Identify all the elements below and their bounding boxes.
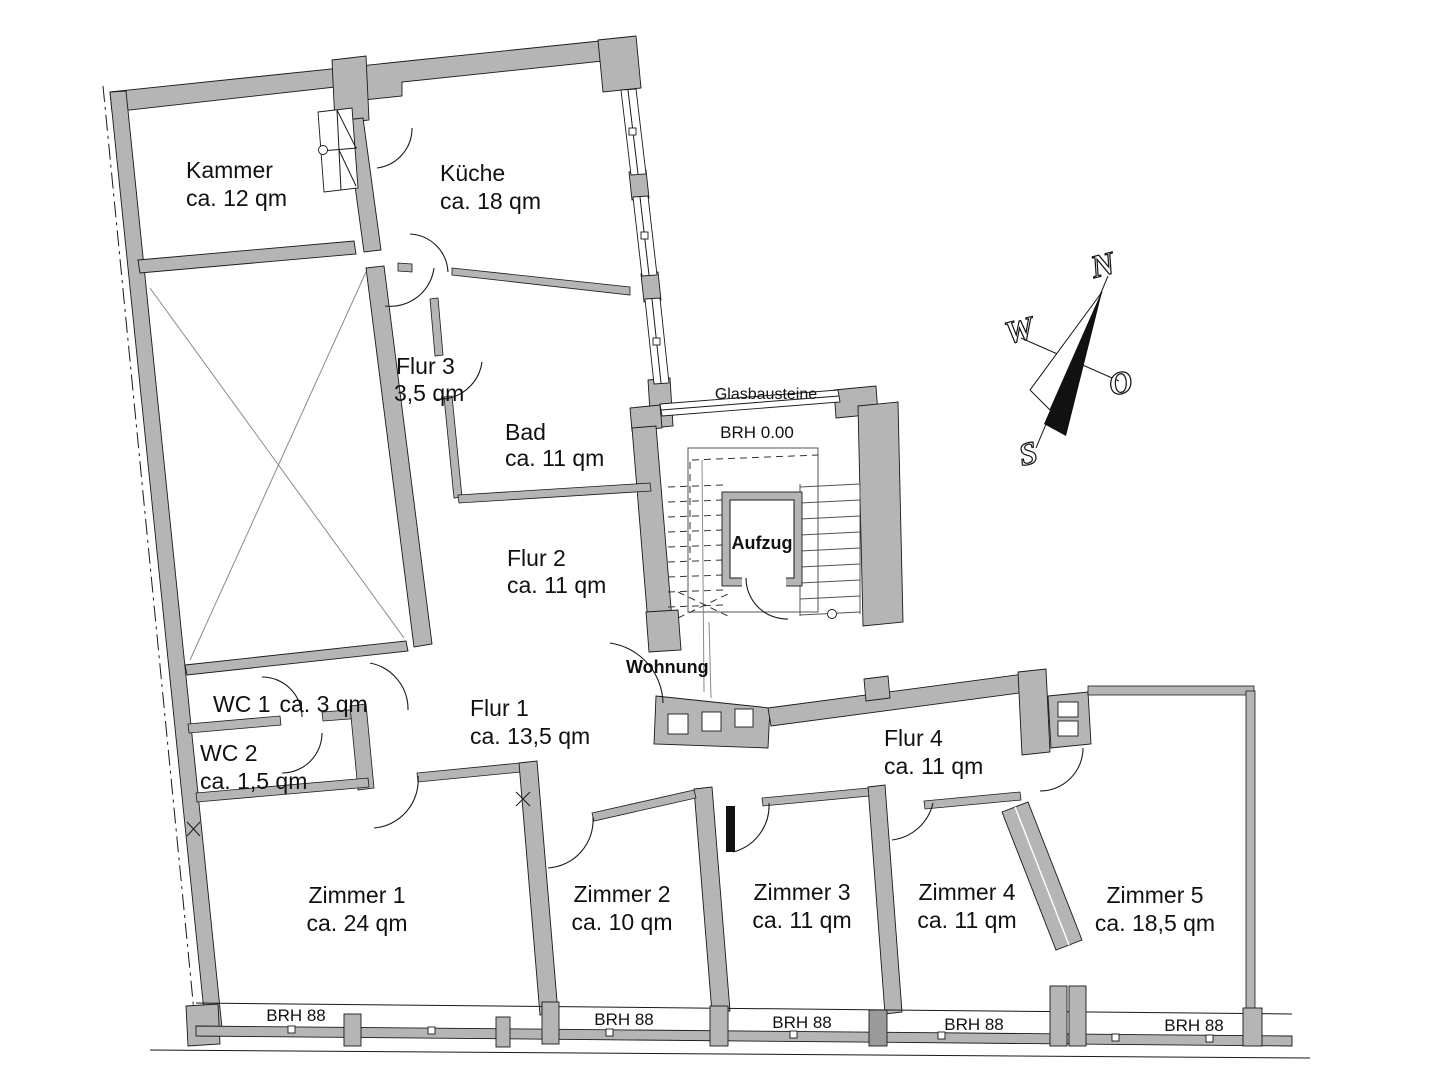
property-boundary-line	[103, 86, 197, 1042]
chimney-symbol	[318, 108, 358, 192]
glass-blocks-label: Glasbausteine	[715, 386, 817, 403]
room-label-bad-area: ca. 11 qm	[505, 445, 604, 471]
room-label-zimmer3-area: ca. 11 qm	[752, 907, 851, 933]
room-label-flur2-name: Flur 2	[507, 545, 566, 571]
elevator	[722, 492, 802, 619]
sill-label-4: BRH 88	[944, 1015, 1004, 1034]
room-label-kueche-area: ca. 18 qm	[440, 188, 541, 214]
room-label-wc1: WC 1ca. 3 qm	[213, 691, 368, 717]
room-label-zimmer4-area: ca. 11 qm	[917, 907, 1016, 933]
room-label-kueche-name: Küche	[440, 160, 505, 186]
room-label-zimmer1-name: Zimmer 1	[308, 882, 405, 908]
room-label-wc1-name: WC 1	[213, 691, 271, 717]
floor-plan-canvas: N W O S Kammer ca. 12 qm Küche ca. 18 qm…	[0, 0, 1440, 1080]
compass-rose: N W O S	[1001, 244, 1136, 473]
room-label-zimmer2-area: ca. 10 qm	[572, 909, 673, 935]
room-label-zimmer3-name: Zimmer 3	[753, 879, 850, 905]
room-label-flur4-area: ca. 11 qm	[884, 753, 983, 779]
compass-east-label: O	[1105, 362, 1136, 403]
room-label-kammer-area: ca. 12 qm	[186, 185, 287, 211]
room-label-wc1-area: ca. 3 qm	[280, 691, 368, 717]
room-label-wc2-name: WC 2	[200, 740, 258, 766]
room-label-flur4-name: Flur 4	[884, 725, 943, 751]
room-label-zimmer1-area: ca. 24 qm	[307, 910, 408, 936]
room-label-zimmer2-name: Zimmer 2	[573, 881, 670, 907]
room-label-zimmer4-name: Zimmer 4	[918, 879, 1015, 905]
sill-label-stairwell: BRH 0.00	[720, 423, 794, 442]
room-label-bad-name: Bad	[505, 419, 546, 445]
entrance-label: Wohnung	[626, 657, 709, 677]
room-label-zimmer5-name: Zimmer 5	[1106, 882, 1203, 908]
room-label-wc2-area: ca. 1,5 qm	[200, 768, 307, 794]
compass-west-label: W	[1001, 308, 1040, 350]
room-label-flur2-area: ca. 11 qm	[507, 572, 606, 598]
sill-label-1: BRH 88	[266, 1006, 326, 1025]
room-label-kammer-name: Kammer	[186, 157, 273, 183]
sill-label-2: BRH 88	[594, 1010, 654, 1029]
elevator-label: Aufzug	[732, 533, 793, 553]
compass-north-label: N	[1086, 244, 1120, 285]
room-label-flur1-name: Flur 1	[470, 695, 529, 721]
sill-label-3: BRH 88	[772, 1013, 832, 1032]
room-label-zimmer5-area: ca. 18,5 qm	[1095, 910, 1215, 936]
floor-plan-page: N W O S Kammer ca. 12 qm Küche ca. 18 qm…	[0, 0, 1440, 1080]
room-label-flur3-area: 3,5 qm	[394, 380, 464, 406]
compass-south-label: S	[1015, 434, 1041, 473]
void-room-cross	[150, 272, 404, 660]
room-label-flur3-name: Flur 3	[396, 353, 455, 379]
sill-label-5: BRH 88	[1164, 1016, 1224, 1035]
door-leaf-zimmer3	[726, 806, 735, 852]
room-label-flur1-area: ca. 13,5 qm	[470, 723, 590, 749]
